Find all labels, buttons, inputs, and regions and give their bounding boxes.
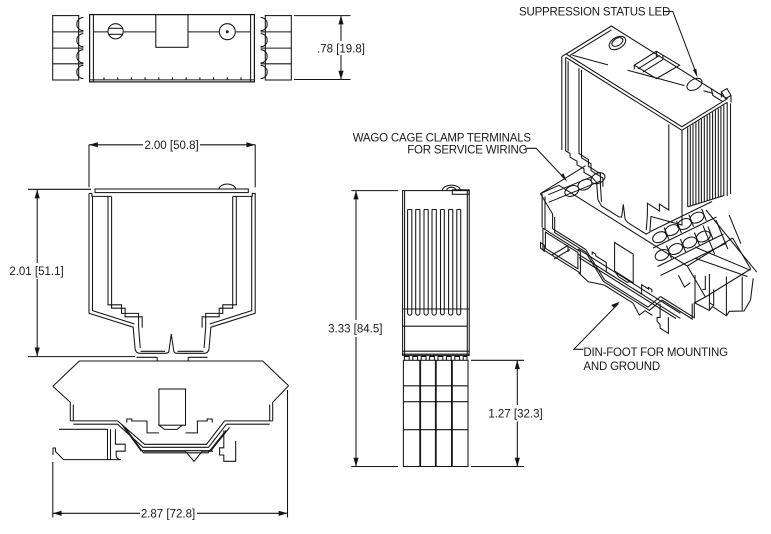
svg-text:2.00 [50.8]: 2.00 [50.8] bbox=[144, 140, 198, 152]
svg-text:DIN-FOOT FOR MOUNTING: DIN-FOOT FOR MOUNTING bbox=[583, 347, 728, 359]
svg-text:SUPPRESSION STATUS LED: SUPPRESSION STATUS LED bbox=[519, 7, 670, 19]
svg-text:2.01 [51.1]: 2.01 [51.1] bbox=[9, 266, 63, 278]
svg-text:2.87 [72.8]: 2.87 [72.8] bbox=[141, 508, 195, 520]
svg-text:3.33 [84.5]: 3.33 [84.5] bbox=[328, 324, 382, 336]
svg-text:.78 [19.8]: .78 [19.8] bbox=[317, 44, 365, 56]
svg-text:WAGO CAGE CLAMP TERMINALS: WAGO CAGE CLAMP TERMINALS bbox=[353, 133, 532, 145]
svg-text:1.27 [32.3]: 1.27 [32.3] bbox=[488, 408, 542, 420]
svg-text:FOR SERVICE WIRING: FOR SERVICE WIRING bbox=[407, 145, 527, 157]
svg-text:AND GROUND: AND GROUND bbox=[583, 361, 660, 373]
